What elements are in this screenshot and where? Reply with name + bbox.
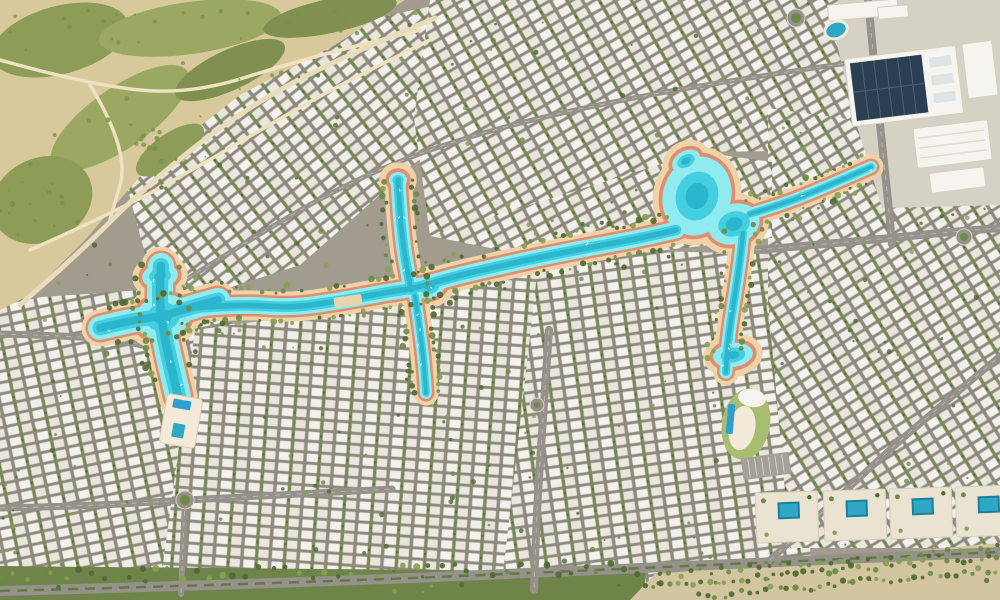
roundabout: [176, 491, 194, 509]
commercial-building: [962, 40, 998, 98]
scene-svg: [0, 0, 1000, 600]
roundabout: [956, 229, 972, 245]
roundabout: [530, 398, 544, 412]
commercial-building: [878, 5, 909, 20]
masterplan-image: [0, 0, 1000, 600]
boat-speck: [419, 328, 420, 331]
solar-roof-building: [844, 45, 963, 126]
roundabout: [787, 9, 805, 27]
boat-speck: [170, 360, 171, 363]
